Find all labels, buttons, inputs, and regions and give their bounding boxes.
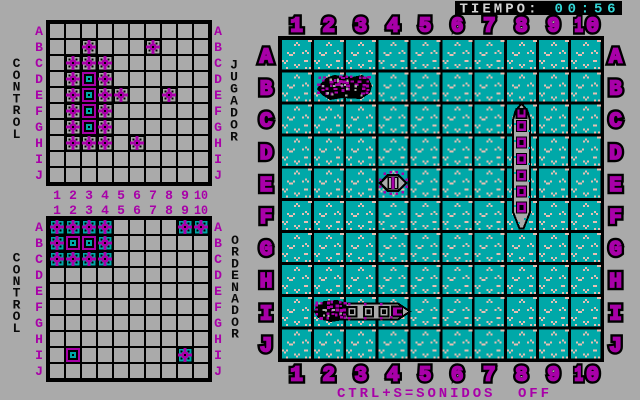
svg-text:F: F xyxy=(35,104,43,119)
svg-text:B: B xyxy=(260,79,273,102)
svg-text:2: 2 xyxy=(322,365,335,388)
svg-text:H: H xyxy=(214,136,222,151)
svg-text:G: G xyxy=(35,120,43,135)
svg-text:A: A xyxy=(35,24,43,39)
svg-text:7: 7 xyxy=(149,203,157,218)
svg-text:F: F xyxy=(609,207,622,230)
svg-text:J: J xyxy=(260,336,273,359)
svg-text:A: A xyxy=(35,220,43,235)
svg-text:A: A xyxy=(214,220,222,235)
svg-text:7: 7 xyxy=(149,188,157,203)
svg-text:3: 3 xyxy=(85,188,93,203)
svg-text:H: H xyxy=(35,332,43,347)
svg-text:D: D xyxy=(35,268,43,283)
svg-text:H: H xyxy=(214,332,222,347)
svg-text:C: C xyxy=(35,56,43,71)
svg-text:B: B xyxy=(214,40,222,55)
svg-text:D: D xyxy=(609,143,622,166)
svg-text:3: 3 xyxy=(85,203,93,218)
svg-text:H: H xyxy=(609,271,622,294)
svg-text:1: 1 xyxy=(290,16,303,39)
svg-text:E: E xyxy=(35,284,43,299)
svg-text:G: G xyxy=(35,316,43,331)
svg-text:A: A xyxy=(609,46,622,69)
svg-text:J: J xyxy=(214,168,222,183)
svg-text:G: G xyxy=(609,239,622,262)
svg-text:H: H xyxy=(260,271,273,294)
svg-text:2: 2 xyxy=(322,16,335,39)
svg-text:4: 4 xyxy=(387,365,400,388)
svg-text:6: 6 xyxy=(133,203,141,218)
svg-text:E: E xyxy=(609,175,622,198)
svg-text:G: G xyxy=(260,239,273,262)
svg-text:4: 4 xyxy=(101,188,109,203)
svg-text:6: 6 xyxy=(451,365,464,388)
svg-text:A: A xyxy=(214,24,222,39)
svg-text:E: E xyxy=(214,88,222,103)
svg-text:6: 6 xyxy=(133,188,141,203)
svg-text:1: 1 xyxy=(53,188,61,203)
svg-text:I: I xyxy=(35,152,43,167)
svg-text:9: 9 xyxy=(181,203,189,218)
svg-text:J: J xyxy=(35,364,43,379)
svg-text:0: 0 xyxy=(586,16,599,39)
svg-text:C: C xyxy=(214,252,222,267)
svg-text:I: I xyxy=(35,348,43,363)
svg-text:8: 8 xyxy=(165,203,173,218)
svg-text:L: L xyxy=(13,321,21,336)
svg-text:9: 9 xyxy=(181,188,189,203)
svg-text:1: 1 xyxy=(53,203,61,218)
svg-text:1: 1 xyxy=(574,365,583,388)
svg-text:8: 8 xyxy=(515,16,528,39)
svg-text:9: 9 xyxy=(547,365,560,388)
svg-text:5: 5 xyxy=(419,365,432,388)
svg-text:4: 4 xyxy=(101,203,109,218)
svg-text:C: C xyxy=(35,252,43,267)
svg-text:F: F xyxy=(35,300,43,315)
svg-text:7: 7 xyxy=(483,365,496,388)
svg-text:1: 1 xyxy=(290,365,303,388)
svg-text:F: F xyxy=(260,207,273,230)
svg-text:I: I xyxy=(609,303,622,326)
svg-text:R: R xyxy=(230,130,238,145)
svg-text:8: 8 xyxy=(165,188,173,203)
svg-text:B: B xyxy=(609,79,622,102)
svg-text:F: F xyxy=(214,104,222,119)
svg-text:C: C xyxy=(260,111,273,134)
svg-text:G: G xyxy=(214,316,222,331)
svg-text:0: 0 xyxy=(586,365,599,388)
svg-text:2: 2 xyxy=(69,188,77,203)
svg-text:R: R xyxy=(231,327,239,342)
svg-text:I: I xyxy=(260,303,273,326)
svg-text:H: H xyxy=(35,136,43,151)
svg-text:D: D xyxy=(214,72,222,87)
svg-text:D: D xyxy=(35,72,43,87)
svg-text:E: E xyxy=(214,284,222,299)
svg-text:2: 2 xyxy=(69,203,77,218)
svg-text:I: I xyxy=(214,348,222,363)
svg-text:B: B xyxy=(35,236,43,251)
svg-text:5: 5 xyxy=(117,203,125,218)
svg-text:E: E xyxy=(260,175,273,198)
svg-text:I: I xyxy=(214,152,222,167)
svg-text:D: D xyxy=(260,143,273,166)
svg-text:9: 9 xyxy=(547,16,560,39)
svg-text:G: G xyxy=(214,120,222,135)
svg-text:F: F xyxy=(214,300,222,315)
svg-text:J: J xyxy=(35,168,43,183)
svg-text:7: 7 xyxy=(483,16,496,39)
svg-text:3: 3 xyxy=(354,365,367,388)
svg-text:D: D xyxy=(214,268,222,283)
svg-text:3: 3 xyxy=(354,16,367,39)
svg-text:J: J xyxy=(214,364,222,379)
svg-text:C: C xyxy=(214,56,222,71)
svg-text:TIEMPO:: TIEMPO: xyxy=(460,2,537,18)
svg-text:10: 10 xyxy=(194,203,208,218)
svg-text:E: E xyxy=(35,88,43,103)
svg-text:L: L xyxy=(13,127,21,142)
svg-text:1: 1 xyxy=(574,16,583,39)
svg-text:A: A xyxy=(260,46,273,69)
svg-text:5: 5 xyxy=(419,16,432,39)
svg-text:5: 5 xyxy=(117,188,125,203)
svg-text:B: B xyxy=(214,236,222,251)
svg-text:B: B xyxy=(35,40,43,55)
svg-text:6: 6 xyxy=(451,16,464,39)
svg-text:10: 10 xyxy=(194,188,208,203)
svg-text:J: J xyxy=(609,336,622,359)
svg-text:8: 8 xyxy=(515,365,528,388)
svg-text:C: C xyxy=(609,111,622,134)
svg-text:4: 4 xyxy=(387,16,400,39)
